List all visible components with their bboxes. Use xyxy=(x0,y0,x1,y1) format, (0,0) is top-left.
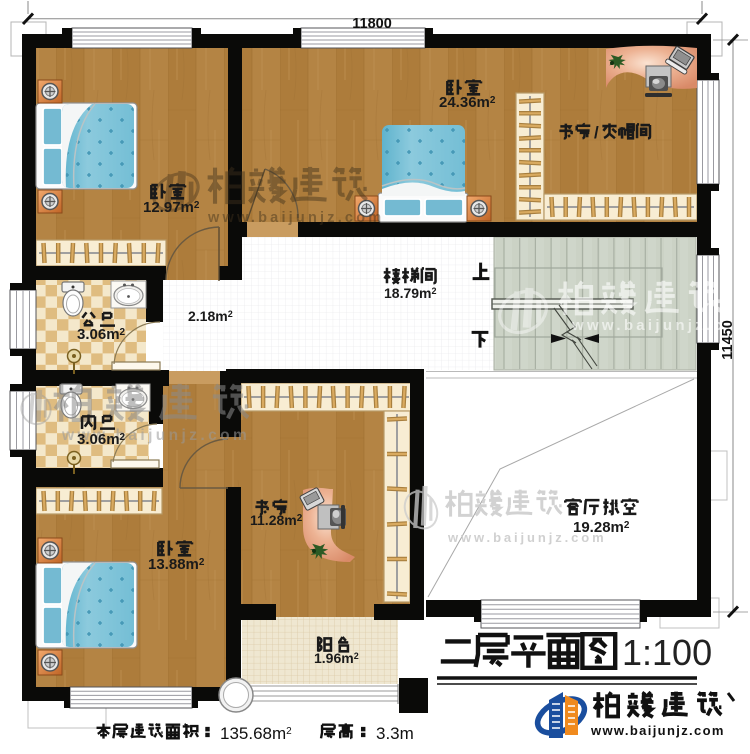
svg-text:3.06m2: 3.06m2 xyxy=(77,431,126,448)
svg-text:3.06m2: 3.06m2 xyxy=(77,326,126,343)
svg-text:1.96m2: 1.96m2 xyxy=(314,650,359,666)
svg-text:12.97m2: 12.97m2 xyxy=(143,199,200,216)
svg-text:2.18m2: 2.18m2 xyxy=(188,308,233,324)
svg-text:135.68m2: 135.68m2 xyxy=(220,724,292,743)
svg-text:3.3m: 3.3m xyxy=(376,724,414,743)
svg-text:24.36m2: 24.36m2 xyxy=(439,94,496,111)
svg-text:1:100: 1:100 xyxy=(622,632,712,673)
svg-text:11450: 11450 xyxy=(720,320,736,360)
svg-text:18.79m2: 18.79m2 xyxy=(384,285,437,301)
svg-text:11800: 11800 xyxy=(352,16,392,32)
svg-text:19.28m2: 19.28m2 xyxy=(573,519,630,536)
svg-text:13.88m2: 13.88m2 xyxy=(148,556,205,573)
svg-text:www.baijunjz.com: www.baijunjz.com xyxy=(590,723,725,738)
svg-text:11.28m2: 11.28m2 xyxy=(250,512,303,528)
svg-text:www.baijunjz.com: www.baijunjz.com xyxy=(207,210,384,226)
svg-text:/: / xyxy=(594,123,599,142)
